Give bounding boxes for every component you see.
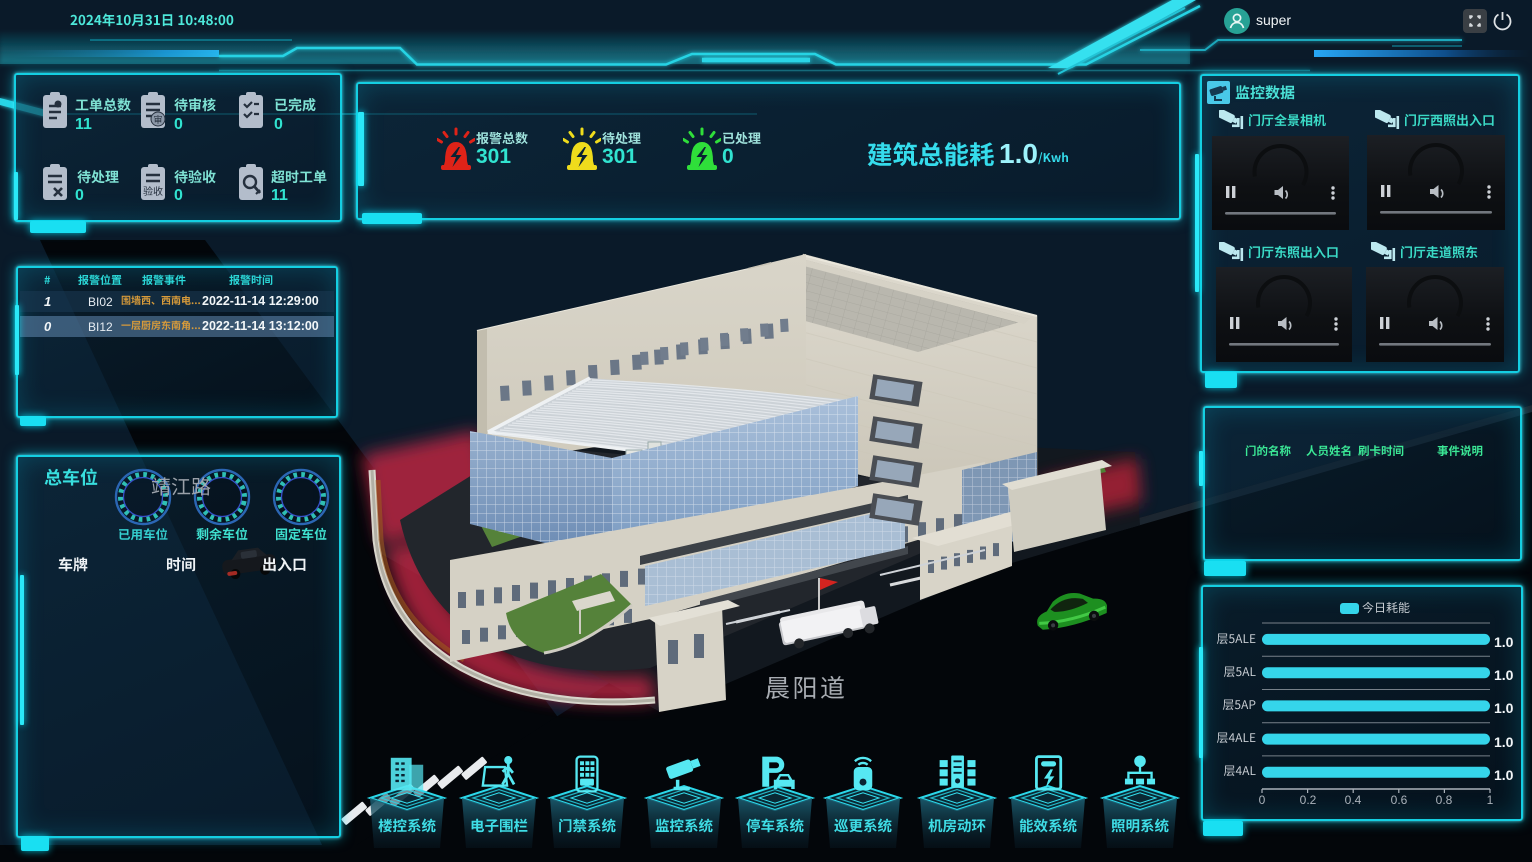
svg-text:审: 审 [153,114,162,125]
svg-text:验收: 验收 [143,185,163,198]
